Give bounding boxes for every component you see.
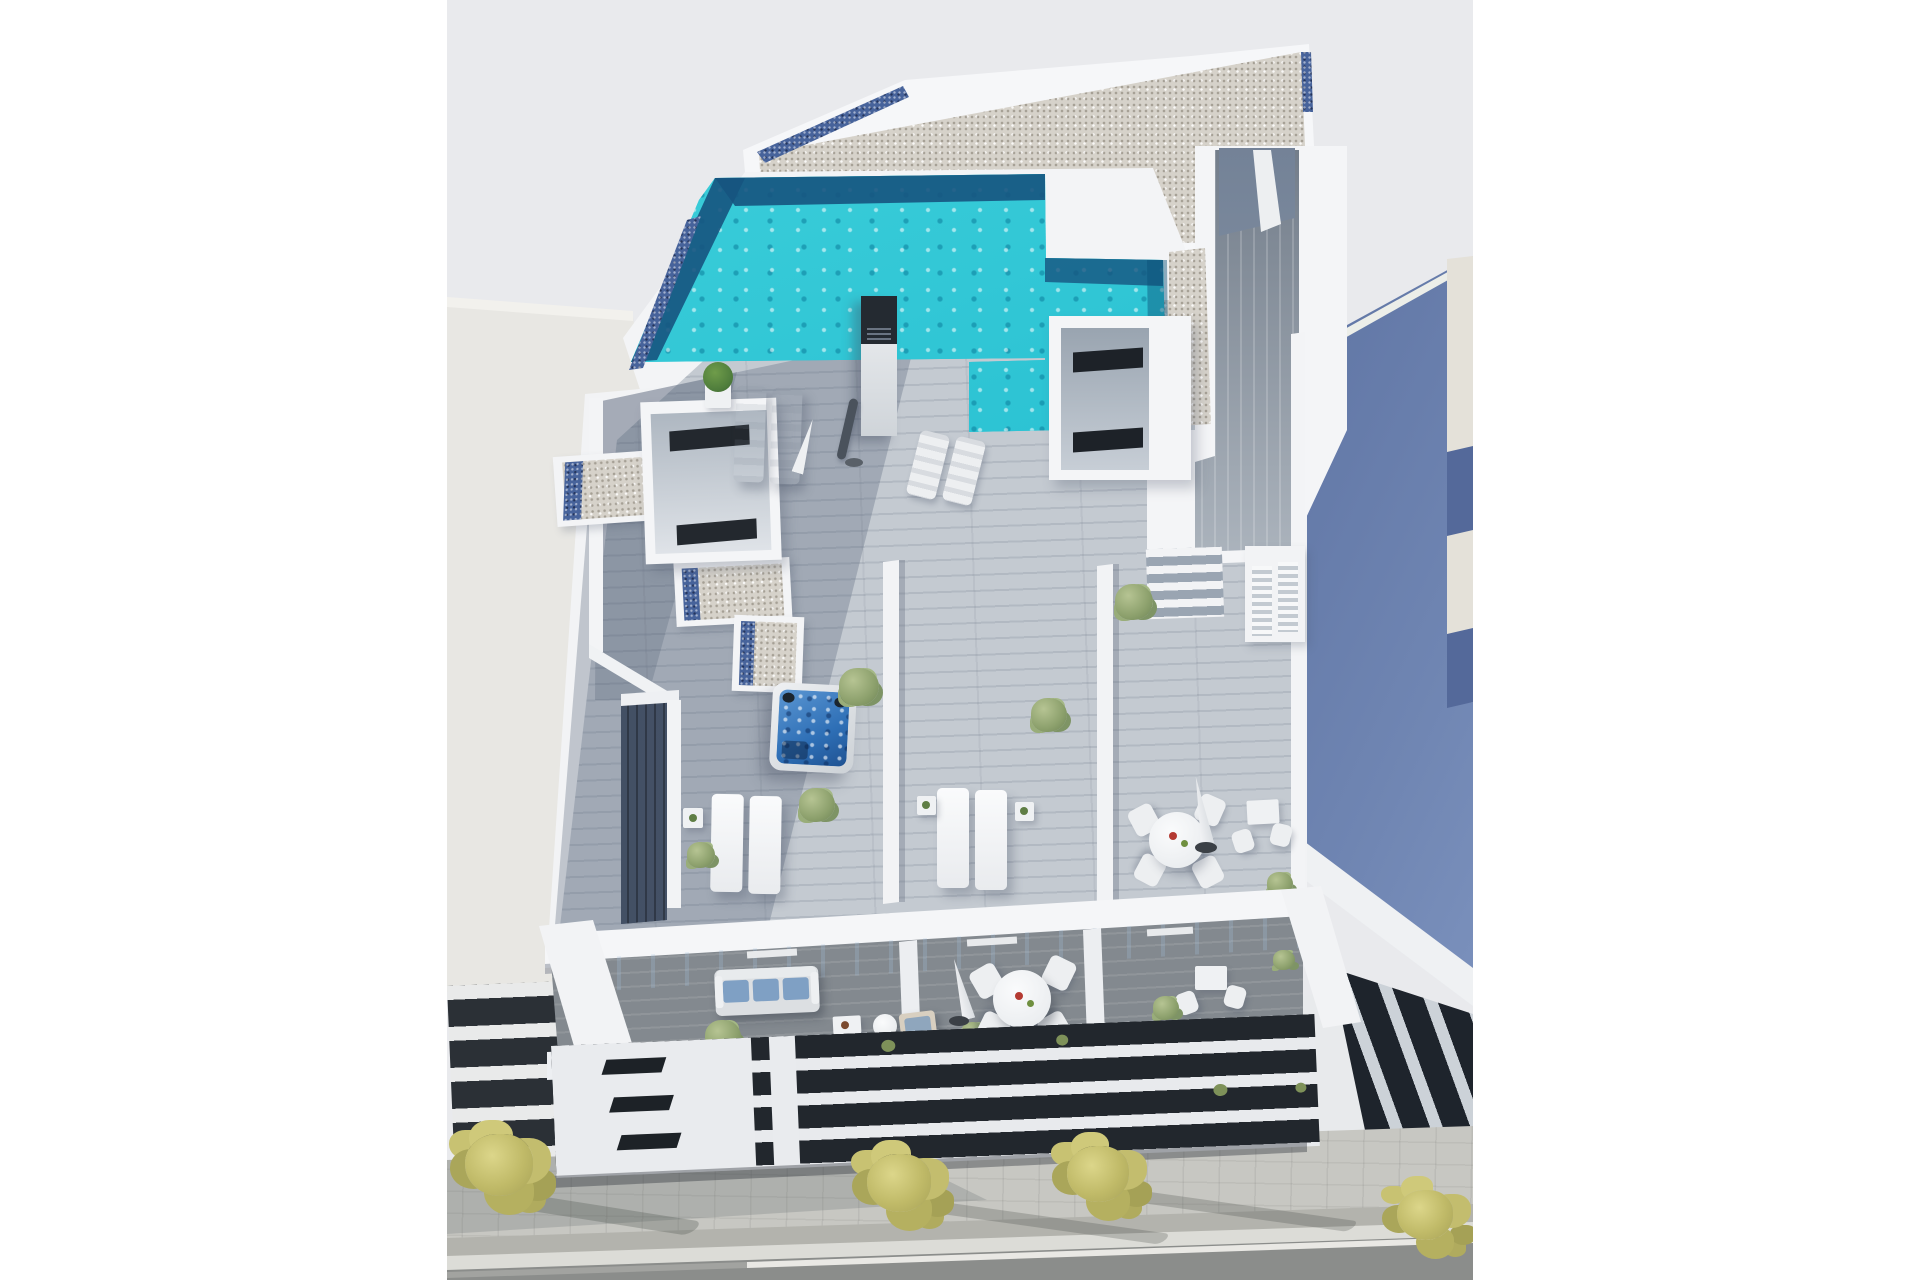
- side-table-plant: [689, 814, 697, 822]
- hot-tub-seat: [781, 740, 808, 759]
- side-table-left: [683, 808, 703, 828]
- padded-lounger-1: [733, 386, 766, 483]
- screenshot-canvas: [0, 0, 1920, 1280]
- sun-lounger-left-1: [710, 794, 744, 893]
- side-table-center-1-plant: [922, 801, 930, 809]
- louvre-cabinet-panel-1: [1252, 566, 1272, 636]
- sun-lounger-center-1: [937, 788, 969, 888]
- sofa-cushion-3: [782, 977, 809, 1000]
- coffee-table-square: [833, 1015, 862, 1034]
- sofa-cushion-2: [752, 978, 779, 1001]
- balcony-sofa: [714, 966, 820, 1016]
- shower-column-vent: [867, 328, 891, 342]
- bistro-table-lower: [1195, 966, 1227, 990]
- facade-pillar: [769, 1036, 801, 1169]
- rooflight-box-2: [1049, 316, 1191, 480]
- facade-greenery-2: [1056, 1034, 1068, 1045]
- facade-vent-slot-3: [617, 1133, 682, 1151]
- louvre-cabinet-panel-2: [1278, 562, 1298, 632]
- bistro-table-upper: [1246, 799, 1279, 825]
- terrace-stairs: [1146, 547, 1224, 620]
- facade-greenery-4: [1295, 1082, 1306, 1092]
- facade-vent-slot-1: [602, 1057, 667, 1075]
- tableware-red-lower: [1015, 992, 1023, 1000]
- dining-set-upper: [1131, 794, 1251, 904]
- gravel-planter-3-pebble: [739, 621, 755, 685]
- dining-table-upper: [1149, 812, 1205, 868]
- side-table-center-2: [1015, 802, 1034, 821]
- street-tree-1: [465, 1134, 533, 1196]
- parasol-base-lower: [949, 1016, 969, 1026]
- tableware-green: [1181, 840, 1188, 847]
- tableware-green-lower: [1027, 1000, 1034, 1007]
- architectural-render: [447, 0, 1473, 1280]
- shower-column: [861, 296, 897, 436]
- bonsai-tree: [703, 362, 733, 392]
- gravel-planter-2-pebble: [682, 568, 701, 621]
- tableware-red: [1169, 832, 1177, 840]
- sofa-arm-right: [810, 972, 819, 1004]
- coffee-table-item: [841, 1021, 849, 1029]
- street-tree-2: [867, 1154, 931, 1212]
- facade-greenery-3: [1213, 1084, 1227, 1097]
- parasol-base-right-terrace: [1195, 842, 1217, 853]
- gravel-planter-3: [732, 615, 805, 693]
- street-tree-4: [1397, 1190, 1453, 1240]
- side-table-center-1: [917, 796, 936, 815]
- street-tree-3: [1067, 1146, 1129, 1202]
- sun-lounger-center-2: [975, 790, 1007, 890]
- gravel-planter-1-pebble: [563, 461, 583, 521]
- louvre-cabinet: [1245, 546, 1305, 642]
- facade-greenery-1: [881, 1040, 895, 1053]
- facade-vent-slot-2: [609, 1095, 674, 1113]
- sun-lounger-left-2: [748, 796, 782, 895]
- sofa-cushion-1: [723, 980, 750, 1003]
- side-table-center-2-plant: [1020, 807, 1028, 815]
- dining-table-lower: [993, 970, 1051, 1028]
- dark-parasol-base: [845, 458, 863, 467]
- sofa-arm-left: [714, 976, 723, 1008]
